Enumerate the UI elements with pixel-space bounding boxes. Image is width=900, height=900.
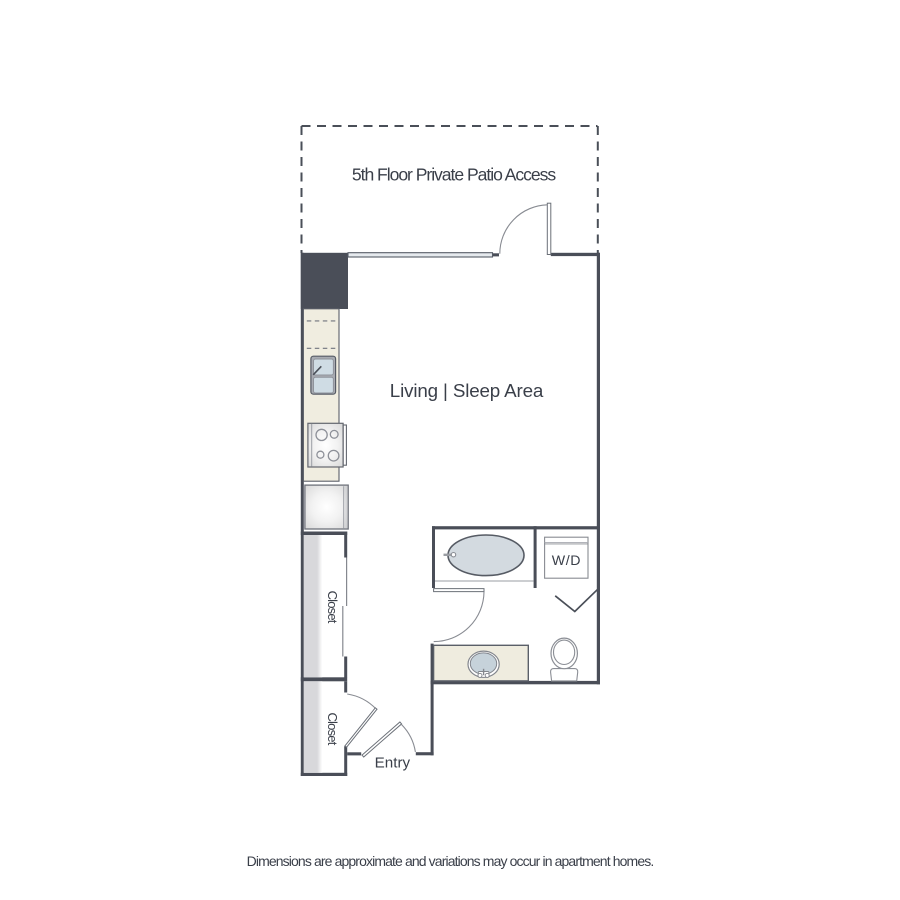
svg-text:5th Floor Private Patio Access: 5th Floor Private Patio Access — [352, 165, 556, 185]
svg-text:W/D: W/D — [552, 553, 581, 569]
svg-text:Entry: Entry — [375, 754, 411, 771]
svg-text:Living | Sleep Area: Living | Sleep Area — [390, 380, 544, 401]
svg-text:Closet: Closet — [325, 591, 340, 624]
svg-text:Dimensions are approximate and: Dimensions are approximate and variation… — [247, 853, 654, 869]
svg-text:Closet: Closet — [325, 712, 340, 745]
